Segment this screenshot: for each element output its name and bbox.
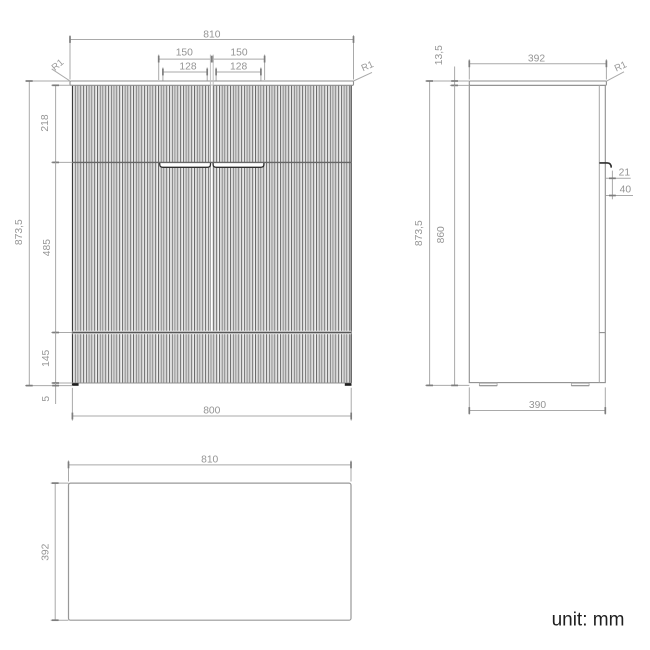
svg-text:128: 128: [179, 61, 196, 72]
svg-text:unit: mm: unit: mm: [552, 610, 625, 631]
svg-text:13,5: 13,5: [434, 45, 445, 65]
svg-text:5: 5: [41, 396, 52, 402]
svg-text:R1: R1: [360, 59, 376, 74]
svg-text:218: 218: [40, 114, 51, 131]
svg-text:810: 810: [203, 29, 220, 40]
svg-text:R1: R1: [50, 57, 66, 73]
svg-text:800: 800: [203, 405, 220, 416]
svg-text:873,5: 873,5: [414, 220, 425, 246]
svg-text:150: 150: [176, 47, 193, 58]
svg-text:392: 392: [528, 54, 545, 65]
svg-text:392: 392: [41, 543, 52, 560]
svg-text:860: 860: [436, 226, 447, 243]
svg-text:390: 390: [529, 400, 546, 411]
svg-text:145: 145: [41, 349, 52, 366]
svg-text:485: 485: [42, 239, 53, 256]
svg-text:810: 810: [201, 454, 218, 465]
svg-text:128: 128: [230, 61, 247, 72]
svg-text:40: 40: [620, 184, 632, 195]
svg-text:150: 150: [230, 47, 247, 58]
svg-text:873,5: 873,5: [14, 219, 25, 245]
svg-text:R1: R1: [613, 59, 629, 74]
svg-text:21: 21: [619, 167, 631, 178]
